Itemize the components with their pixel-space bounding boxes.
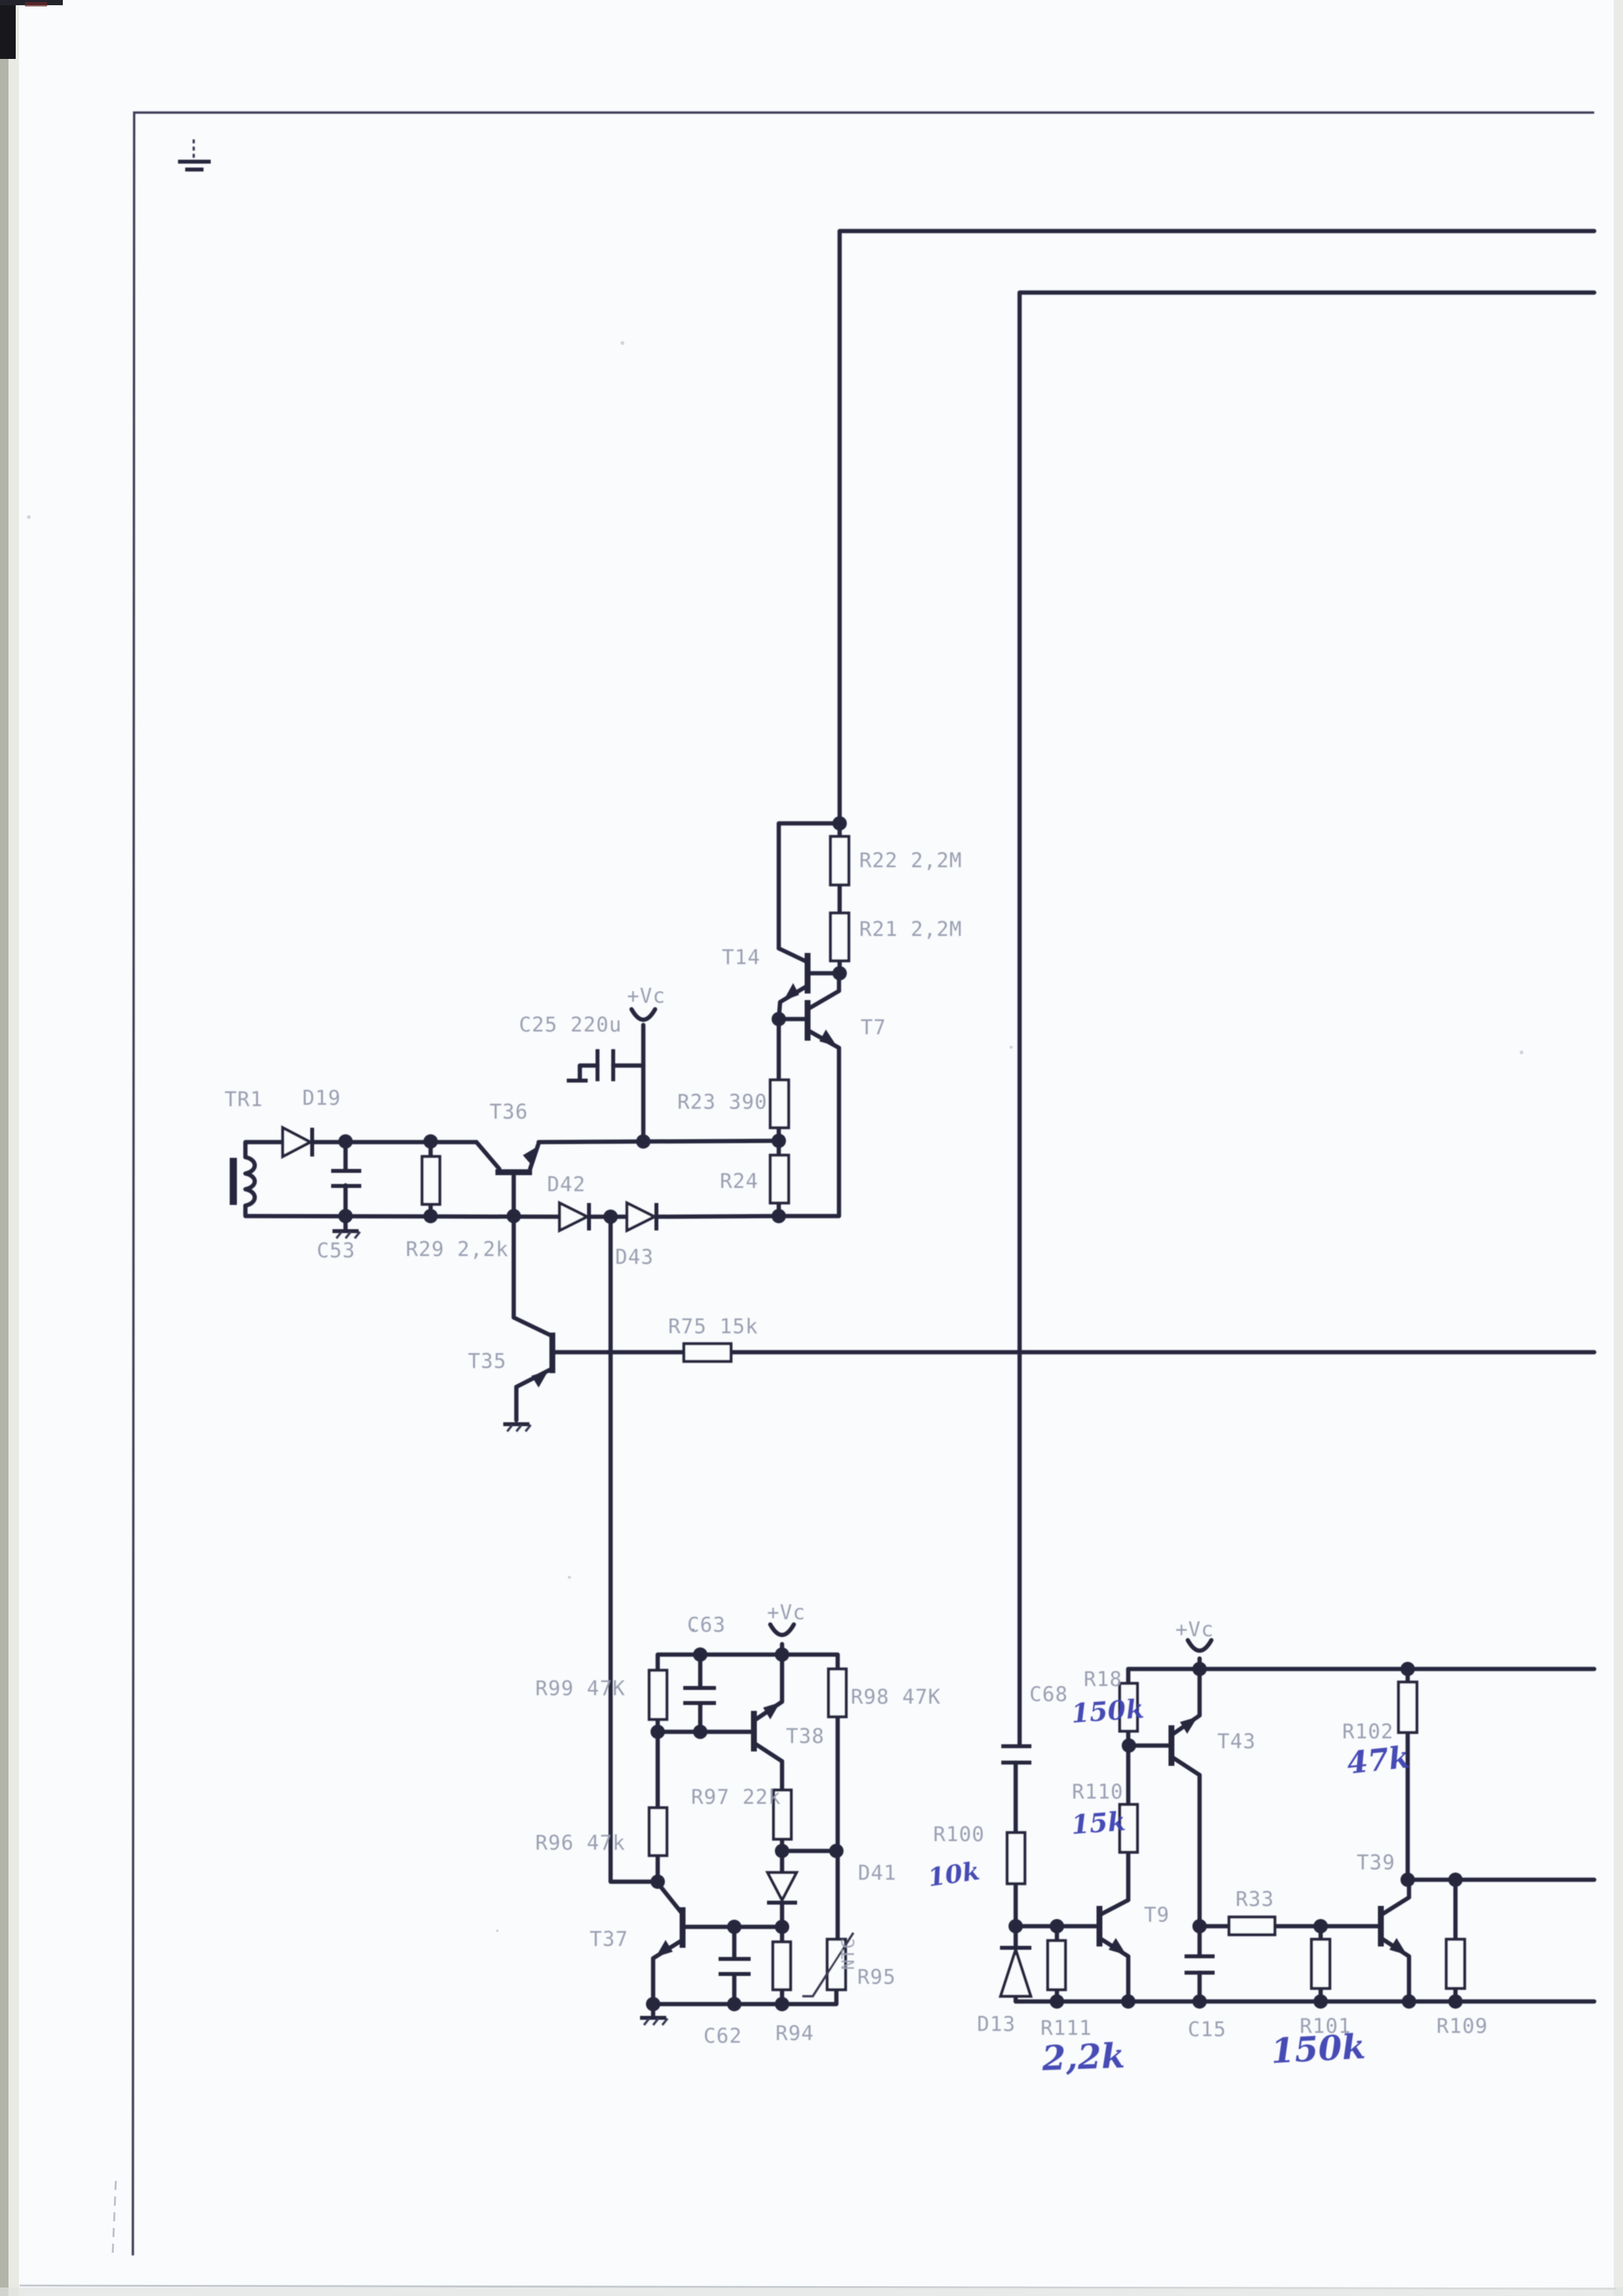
r95-label: R95	[857, 1965, 896, 1989]
r109-resistor-icon	[1446, 1939, 1465, 1988]
t43-arrow-icon	[1180, 1717, 1198, 1734]
t9-arrow-icon	[1109, 1938, 1126, 1955]
t43-label: T43	[1217, 1730, 1256, 1753]
svg-text:.: .	[687, 1613, 700, 1637]
r29-resistor-icon	[422, 1157, 440, 1204]
d19-diode-icon	[283, 1128, 310, 1157]
r29-label: R29 2,2k	[406, 1238, 508, 1261]
t37-ground-icon	[640, 2018, 668, 2025]
d43-label: D43	[615, 1246, 654, 1269]
r24-resistor-icon	[770, 1155, 789, 1203]
t7-label: T7	[861, 1016, 886, 1039]
vc-mid-label: +Vc	[767, 1601, 806, 1624]
paper-bottom-shade	[0, 2287, 1623, 2296]
r110-handwritten-value: 15k	[1070, 1806, 1126, 1840]
r22-label: R22 2,2M	[859, 849, 962, 872]
scan-left-strip	[0, 0, 9, 2296]
r33-resistor-icon	[1229, 1917, 1275, 1935]
t36-label: T36	[490, 1100, 528, 1124]
r18-label: R18	[1084, 1668, 1122, 1691]
d13-diode-icon	[1001, 1950, 1031, 1996]
ntc-label: NTC	[838, 1938, 859, 1970]
r97-label: R97 22k	[691, 1785, 781, 1809]
t14-label: T14	[722, 946, 760, 969]
tr1-coil-icon	[245, 1157, 255, 1206]
r100-label: R100	[933, 1823, 985, 1846]
capacitor-c68: C68	[1001, 1683, 1068, 1763]
r98-resistor-icon	[829, 1669, 846, 1717]
t37-arrow-icon	[656, 1940, 673, 1957]
r100-handwritten-value: 10k	[926, 1856, 982, 1892]
c25-label: C25 220u	[519, 1013, 622, 1037]
r18-handwritten-value: 150k	[1070, 1693, 1145, 1729]
bus-inner-L	[1020, 293, 1594, 1744]
scanned-schematic-page: TR1 D19 D42 D43 D41 D13	[0, 0, 1623, 2296]
r98-label: R98 47K	[851, 1685, 941, 1709]
t38-arrow-icon	[763, 1702, 780, 1719]
t9-label: T9	[1144, 1903, 1169, 1927]
d42-label: D42	[547, 1173, 586, 1196]
vc-top-icon	[632, 1009, 655, 1020]
c62-label: C62	[704, 2024, 742, 2048]
r102-handwritten-value: 47k	[1346, 1739, 1412, 1781]
r109-label: R109	[1436, 2015, 1488, 2038]
r23-resistor-icon	[770, 1080, 789, 1128]
t35-ground-icon	[503, 1424, 531, 1431]
r21-resistor-icon	[830, 913, 849, 961]
t39-arrow-icon	[1389, 1938, 1407, 1955]
d41-label: D41	[858, 1861, 897, 1885]
vc-right-icon	[1188, 1640, 1211, 1651]
paper-crease	[113, 2181, 116, 2257]
r33-label: R33	[1236, 1888, 1274, 1911]
t38-label: T38	[786, 1725, 825, 1748]
r96-resistor-icon	[649, 1808, 667, 1856]
r96-label: R96 47k	[535, 1831, 626, 1855]
tr1-core	[230, 1158, 237, 1205]
scan-right-shadow	[1614, 0, 1623, 2296]
c15-label: C15	[1188, 2018, 1226, 2041]
r102-resistor-icon	[1399, 1682, 1417, 1732]
r99-label: R99 47K	[535, 1677, 626, 1700]
scan-corner-black	[0, 0, 16, 59]
r110-label: R110	[1072, 1780, 1124, 1804]
junction-dots	[338, 816, 1463, 2011]
t14-arrow-icon	[783, 983, 799, 1001]
vc-top-label: +Vc	[627, 984, 666, 1008]
diode-d19: D19	[283, 1086, 341, 1157]
diode-d43: D43	[615, 1203, 656, 1269]
d43-diode-icon	[627, 1203, 654, 1230]
diode-d13: D13	[977, 1948, 1031, 2036]
c53-label: C53	[317, 1239, 355, 1263]
schematic-canvas: TR1 D19 D42 D43 D41 D13	[0, 0, 1623, 2296]
r75-label: R75 15k	[668, 1315, 758, 1338]
r111-handwritten-value: 2,2k	[1041, 2036, 1126, 2079]
diode-d42: D42	[547, 1173, 589, 1230]
t39-label: T39	[1357, 1851, 1395, 1874]
d42-diode-icon	[560, 1203, 587, 1230]
d19-label: D19	[302, 1086, 341, 1110]
r21-label: R21 2,2M	[859, 918, 962, 941]
ground-symbol-top	[178, 139, 211, 170]
r22-resistor-icon	[830, 836, 849, 885]
scan-red-mark	[25, 2, 47, 7]
r75-resistor-icon	[684, 1344, 731, 1361]
t37-label: T37	[590, 1928, 628, 1951]
r101-handwritten-value: 150k	[1270, 2026, 1366, 2071]
capacitor-c25: C25 220u	[519, 1013, 622, 1081]
r23-label: R23 390	[677, 1090, 768, 1114]
r101-resistor-icon	[1311, 1939, 1330, 1988]
r94-label: R94	[776, 2022, 814, 2045]
schematic-drawing: TR1 D19 D42 D43 D41 D13	[133, 113, 1594, 2255]
bus-outer-L	[840, 231, 1594, 823]
d13-label: D13	[977, 2013, 1016, 2036]
r100-resistor-icon	[1007, 1833, 1025, 1884]
r24-label: R24	[720, 1170, 758, 1193]
vc-mid-icon	[770, 1624, 794, 1635]
tr1-label: TR1	[224, 1088, 263, 1111]
d41-diode-icon	[768, 1873, 796, 1900]
r94-resistor-icon	[773, 1942, 791, 1990]
bus-lines	[731, 231, 1594, 1744]
vc-right-label: +Vc	[1175, 1618, 1214, 1641]
c53-ground-icon	[332, 1231, 360, 1238]
top-row-labels: .	[687, 1613, 700, 1637]
diode-d41: D41	[767, 1861, 897, 1903]
r99-resistor-icon	[649, 1670, 667, 1719]
c68-label: C68	[1029, 1683, 1068, 1706]
r102-label: R102	[1342, 1720, 1394, 1744]
wiring	[245, 823, 1594, 2016]
r111-resistor-icon	[1048, 1941, 1065, 1990]
t35-label: T35	[468, 1350, 507, 1373]
r111-label: R111	[1041, 2017, 1092, 2040]
scan-left-shadow	[9, 0, 19, 2296]
